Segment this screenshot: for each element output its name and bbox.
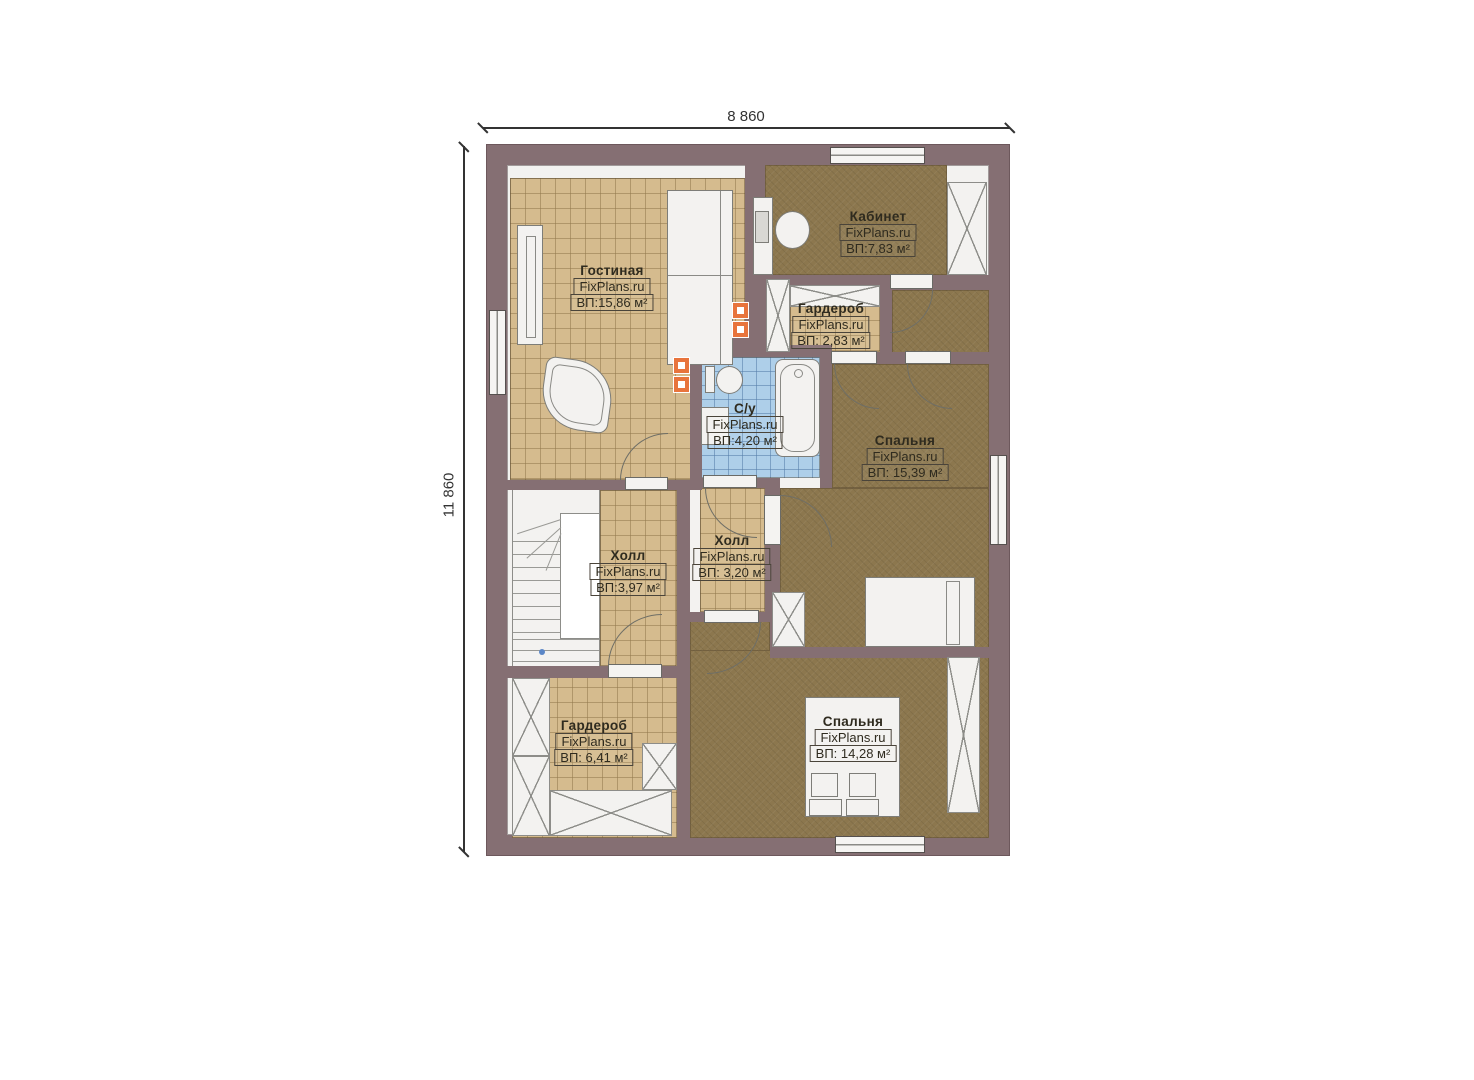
closet xyxy=(550,790,672,836)
door-threshold xyxy=(703,475,757,488)
sofa xyxy=(667,190,733,365)
room-name: Спальня xyxy=(875,433,935,448)
vent-marker xyxy=(674,377,689,392)
dimension-line-top xyxy=(483,127,1010,129)
vent-marker xyxy=(674,358,689,373)
room-name: С/у xyxy=(734,401,756,416)
closet xyxy=(512,756,550,836)
room-name: Гостиная xyxy=(580,263,643,278)
room-label-bathroom: С/у FixPlans.ru ВП:4,20 м² xyxy=(706,401,783,449)
room-label-hall-center: Холл FixPlans.ru ВП: 3,20 м² xyxy=(692,533,771,581)
room-area: ВП: 3,20 м² xyxy=(692,564,771,581)
floor-plan: Гостиная FixPlans.ru ВП:15,86 м² Кабинет… xyxy=(487,145,1009,855)
toilet-tank xyxy=(705,366,715,393)
room-label-bedroom-bottom: Спальня FixPlans.ru ВП: 14,28 м² xyxy=(810,714,897,762)
room-label-wardrobe-small: Гардероб FixPlans.ru ВП: 2,83 м² xyxy=(791,301,870,349)
floor-plan-page: 8 860 11 860 xyxy=(0,0,1474,1080)
dimension-line-left xyxy=(463,146,465,852)
room-brand: FixPlans.ru xyxy=(814,729,891,746)
office-chair xyxy=(775,211,810,249)
toilet-bowl xyxy=(716,366,743,394)
room-brand: FixPlans.ru xyxy=(555,733,632,750)
door-threshold xyxy=(905,351,951,364)
room-brand: FixPlans.ru xyxy=(839,224,916,241)
bed-pillow xyxy=(811,773,838,797)
room-area: ВП:7,83 м² xyxy=(840,240,916,257)
room-area: ВП: 2,83 м² xyxy=(791,332,870,349)
desk-monitor xyxy=(755,211,769,243)
door-threshold xyxy=(831,351,877,364)
closet xyxy=(642,743,677,790)
room-brand: FixPlans.ru xyxy=(589,563,666,580)
closet xyxy=(947,657,980,813)
window xyxy=(830,147,925,164)
bed-blanket xyxy=(846,799,879,816)
room-name: Спальня xyxy=(823,714,883,729)
bed xyxy=(865,577,975,647)
wall xyxy=(507,480,702,490)
window xyxy=(835,836,925,853)
tv-unit xyxy=(517,225,543,345)
dimension-width-label: 8 860 xyxy=(727,108,765,125)
closet xyxy=(772,592,805,647)
room-label-living: Гостиная FixPlans.ru ВП:15,86 м² xyxy=(570,263,653,311)
room-label-wardrobe-bottom: Гардероб FixPlans.ru ВП: 6,41 м² xyxy=(554,718,633,766)
room-area: ВП: 6,41 м² xyxy=(554,749,633,766)
room-brand: FixPlans.ru xyxy=(792,316,869,333)
room-brand: FixPlans.ru xyxy=(866,448,943,465)
bed-blanket xyxy=(809,799,842,816)
wall xyxy=(677,480,690,838)
window xyxy=(489,310,506,395)
room-brand: FixPlans.ru xyxy=(693,548,770,565)
room-label-office: Кабинет FixPlans.ru ВП:7,83 м² xyxy=(839,209,916,257)
room-label-bedroom-right: Спальня FixPlans.ru ВП: 15,39 м² xyxy=(862,433,949,481)
dimension-height-label: 11 860 xyxy=(441,473,458,518)
closet xyxy=(512,678,550,756)
wall xyxy=(820,345,832,488)
room-name: Кабинет xyxy=(850,209,907,224)
room-brand: FixPlans.ru xyxy=(706,416,783,433)
stair-marker xyxy=(539,649,545,655)
room-area: ВП:15,86 м² xyxy=(570,294,653,311)
door-threshold xyxy=(608,664,662,678)
room-name: Гардероб xyxy=(561,718,627,733)
bed-pillow xyxy=(849,773,876,797)
room-name: Холл xyxy=(610,548,645,563)
door-threshold xyxy=(890,274,933,289)
room-area: ВП: 14,28 м² xyxy=(810,745,897,762)
room-label-hall-left: Холл FixPlans.ru ВП:3,97 м² xyxy=(589,548,666,596)
vent-marker xyxy=(733,322,748,337)
room-name: Гардероб xyxy=(798,301,864,316)
staircase xyxy=(512,480,600,672)
closet xyxy=(766,279,790,352)
room-name: Холл xyxy=(714,533,749,548)
room-area: ВП:4,20 м² xyxy=(707,432,783,449)
vent-marker xyxy=(733,303,748,318)
closet xyxy=(947,182,987,275)
window xyxy=(990,455,1007,545)
room-area: ВП: 15,39 м² xyxy=(862,464,949,481)
room-brand: FixPlans.ru xyxy=(573,278,650,295)
room-area: ВП:3,97 м² xyxy=(590,579,666,596)
stair-treads xyxy=(513,541,560,639)
